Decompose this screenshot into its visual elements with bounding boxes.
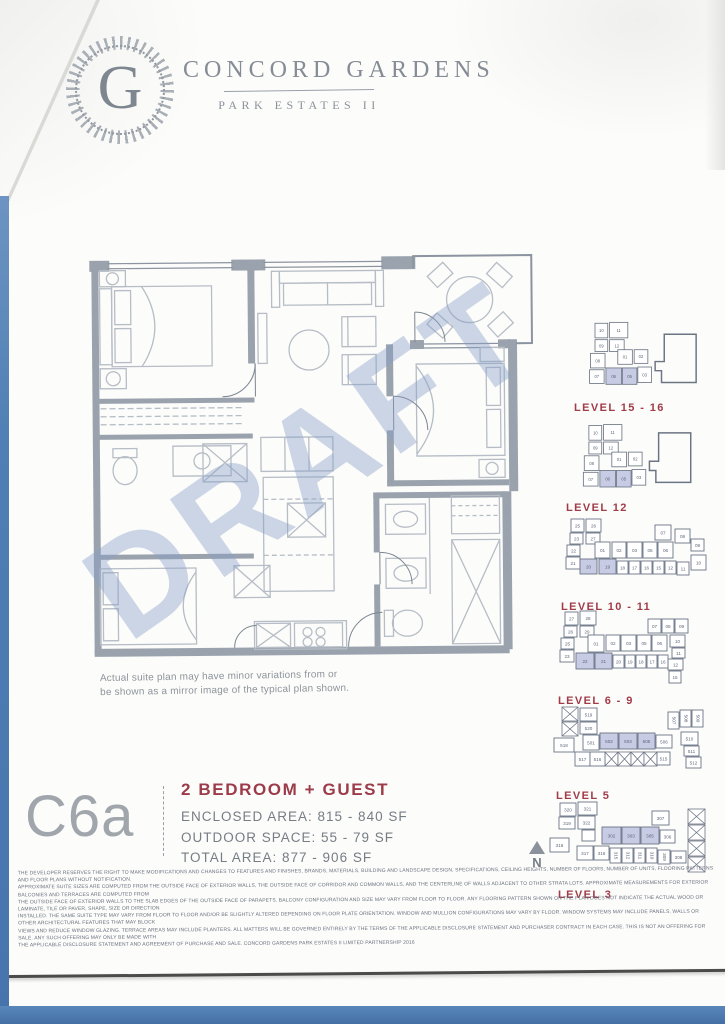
svg-text:321: 321: [584, 806, 592, 811]
svg-text:311: 311: [637, 852, 642, 860]
svg-text:17: 17: [632, 565, 638, 570]
guest-bed: [100, 565, 271, 644]
svg-text:07: 07: [652, 624, 658, 629]
svg-text:508: 508: [683, 715, 688, 723]
svg-text:320: 320: [564, 807, 572, 812]
svg-text:307: 307: [657, 816, 665, 821]
svg-text:520: 520: [585, 726, 593, 731]
svg-text:08: 08: [589, 461, 594, 466]
svg-text:10: 10: [696, 560, 702, 565]
keyplan-drawing: 1011091208070102060503: [562, 316, 710, 398]
right-edge-shading: [705, 0, 725, 170]
logo-letter: G: [66, 36, 174, 144]
svg-text:25: 25: [575, 523, 581, 528]
svg-text:515: 515: [660, 756, 668, 761]
svg-text:08: 08: [665, 624, 671, 629]
svg-text:06: 06: [605, 476, 610, 481]
armchairs: [342, 316, 377, 384]
svg-text:15: 15: [656, 565, 662, 570]
svg-text:19: 19: [605, 564, 611, 569]
svg-text:519: 519: [585, 712, 593, 717]
keyplan-level-5: 5195205185015025035055065175165155075085…: [550, 702, 718, 802]
brand-logo: G: [66, 36, 174, 144]
unit-divider: [163, 786, 164, 856]
svg-text:28: 28: [585, 616, 591, 621]
svg-text:29: 29: [584, 629, 590, 634]
svg-text:22: 22: [571, 548, 577, 553]
svg-text:27: 27: [569, 616, 575, 621]
svg-text:10: 10: [599, 328, 604, 333]
unit-area-enclosed: ENCLOSED AREA: 815 - 840 SF: [181, 807, 408, 828]
window-lines: [107, 255, 532, 351]
svg-text:08: 08: [595, 358, 600, 363]
north-arrow: N: [527, 841, 547, 870]
svg-text:12: 12: [615, 343, 620, 348]
svg-text:305: 305: [646, 833, 654, 838]
svg-text:12: 12: [609, 446, 614, 451]
svg-text:11: 11: [676, 651, 681, 656]
svg-text:512: 512: [690, 760, 698, 765]
svg-text:07: 07: [588, 477, 593, 482]
svg-text:507: 507: [671, 717, 676, 725]
sofa: [271, 270, 383, 307]
svg-text:16: 16: [660, 659, 666, 664]
svg-text:322: 322: [583, 820, 591, 825]
svg-text:12: 12: [668, 565, 674, 570]
svg-text:23: 23: [564, 654, 570, 659]
svg-text:05: 05: [647, 548, 653, 553]
svg-text:27: 27: [590, 536, 596, 541]
svg-text:516: 516: [594, 757, 602, 762]
coffee-table: [289, 330, 329, 370]
closet-sliders: [101, 408, 245, 425]
svg-text:01: 01: [623, 355, 628, 360]
keyplan-drawing: 5195205185015025035055065175165155075085…: [550, 702, 718, 786]
balcony-dining: [426, 262, 513, 339]
kitchen: [253, 437, 347, 650]
svg-text:510: 510: [686, 736, 694, 741]
svg-text:25: 25: [565, 641, 571, 646]
bathroom-1: [113, 444, 247, 485]
svg-text:316: 316: [598, 851, 606, 856]
svg-text:01: 01: [617, 457, 622, 462]
plan-caption: Actual suite plan may have minor variati…: [100, 668, 349, 699]
svg-text:302: 302: [608, 833, 616, 838]
svg-text:01: 01: [600, 548, 606, 553]
svg-text:03: 03: [637, 475, 642, 480]
tv-console: [258, 313, 267, 363]
svg-text:09: 09: [593, 446, 598, 451]
svg-text:26: 26: [591, 523, 597, 528]
svg-text:09: 09: [679, 624, 685, 629]
svg-text:07: 07: [594, 374, 599, 379]
bathroom-2: [383, 495, 500, 644]
svg-text:21: 21: [570, 561, 576, 566]
svg-text:501: 501: [587, 740, 595, 745]
brand-block: CONCORD GARDENS PARK ESTATES II: [183, 57, 415, 113]
unit-area-outdoor: OUTDOOR SPACE: 55 - 79 SF: [181, 828, 408, 849]
svg-text:306: 306: [664, 834, 672, 839]
svg-text:03: 03: [632, 548, 638, 553]
svg-text:06: 06: [657, 641, 663, 646]
keyplan-label: LEVEL 15 - 16: [562, 402, 710, 414]
svg-text:317: 317: [581, 851, 589, 856]
keyplan-level-15-16: 1011091208070102060503 LEVEL 15 - 16: [562, 316, 710, 414]
svg-text:01: 01: [593, 641, 599, 646]
svg-text:02: 02: [639, 354, 644, 359]
master-bed: [99, 270, 212, 389]
svg-text:318: 318: [556, 843, 564, 848]
svg-text:20: 20: [586, 564, 592, 569]
brand-underline: [224, 89, 374, 92]
svg-text:18: 18: [620, 565, 626, 570]
svg-text:11: 11: [611, 430, 616, 435]
svg-text:11: 11: [681, 566, 686, 571]
svg-text:17: 17: [649, 659, 655, 664]
svg-text:505: 505: [643, 739, 651, 744]
svg-text:18: 18: [638, 659, 644, 664]
svg-text:19: 19: [627, 659, 633, 664]
svg-text:309: 309: [662, 853, 667, 861]
blue-edge-bottom: [0, 1006, 725, 1024]
floorplan: [83, 253, 537, 667]
keyplan-drawing: 2728262925230102030506070809101112222120…: [550, 607, 718, 691]
svg-text:03: 03: [626, 641, 632, 646]
svg-text:308: 308: [675, 855, 683, 860]
svg-text:315: 315: [613, 852, 618, 860]
svg-text:02: 02: [616, 548, 622, 553]
svg-text:06: 06: [611, 374, 616, 379]
svg-text:10: 10: [675, 639, 681, 644]
unit-code: C6a: [25, 783, 134, 850]
unit-area-total: TOTAL AREA: 877 - 906 SF: [181, 848, 408, 869]
svg-text:09: 09: [695, 543, 701, 548]
svg-text:303: 303: [627, 833, 635, 838]
svg-text:12: 12: [673, 662, 679, 667]
svg-text:503: 503: [624, 739, 632, 744]
floorplan-svg: [83, 253, 537, 667]
svg-text:310: 310: [649, 852, 654, 860]
keyplan-level-10-11: 2526232722210102030506070809201918171615…: [555, 515, 720, 613]
svg-text:511: 511: [688, 749, 696, 754]
svg-text:22: 22: [582, 659, 588, 664]
keyplan-level-6-9: 2728262925230102030506070809101112222120…: [550, 607, 718, 707]
svg-text:15: 15: [672, 675, 678, 680]
svg-text:06: 06: [663, 548, 669, 553]
svg-text:07: 07: [660, 530, 666, 535]
svg-text:23: 23: [574, 536, 580, 541]
svg-text:11: 11: [617, 328, 622, 333]
keyplan-drawing: 2526232722210102030506070809201918171615…: [555, 515, 720, 597]
svg-text:517: 517: [579, 757, 587, 762]
page-edge-line: [0, 969, 725, 978]
svg-text:02: 02: [610, 641, 616, 646]
svg-text:26: 26: [568, 629, 574, 634]
svg-text:05: 05: [627, 374, 632, 379]
svg-text:05: 05: [621, 476, 626, 481]
svg-text:05: 05: [641, 641, 647, 646]
svg-text:03: 03: [642, 372, 647, 377]
svg-text:509: 509: [695, 715, 700, 723]
unit-info: 2 BEDROOM + GUEST ENCLOSED AREA: 815 - 8…: [181, 780, 408, 869]
svg-text:10: 10: [593, 430, 598, 435]
page: G CONCORD GARDENS PARK ESTATES II: [0, 0, 725, 1024]
unit-type: 2 BEDROOM + GUEST: [181, 780, 408, 800]
svg-text:02: 02: [633, 457, 638, 462]
disclaimer: THE DEVELOPER RESERVES THE RIGHT TO MAKE…: [18, 866, 717, 950]
svg-text:506: 506: [660, 739, 668, 744]
svg-text:502: 502: [605, 739, 613, 744]
keyplan-drawing: 1011091208070102060503: [558, 420, 706, 498]
svg-text:518: 518: [560, 743, 568, 748]
svg-text:09: 09: [599, 343, 604, 348]
brand-title: CONCORD GARDENS: [183, 57, 415, 84]
brand-subtitle: PARK ESTATES II: [183, 98, 415, 113]
svg-text:08: 08: [680, 534, 686, 539]
keyplan-level-12: 1011091208070102060503 LEVEL 12: [558, 420, 706, 514]
bedroom2-bed: [416, 347, 505, 478]
blue-edge-left: [0, 196, 9, 1024]
svg-text:312: 312: [625, 852, 630, 860]
svg-text:16: 16: [644, 565, 650, 570]
svg-text:319: 319: [563, 821, 571, 826]
svg-text:21: 21: [601, 659, 607, 664]
keyplan-label: LEVEL 12: [558, 502, 706, 514]
north-arrow-icon: [529, 841, 545, 854]
svg-text:20: 20: [616, 659, 622, 664]
